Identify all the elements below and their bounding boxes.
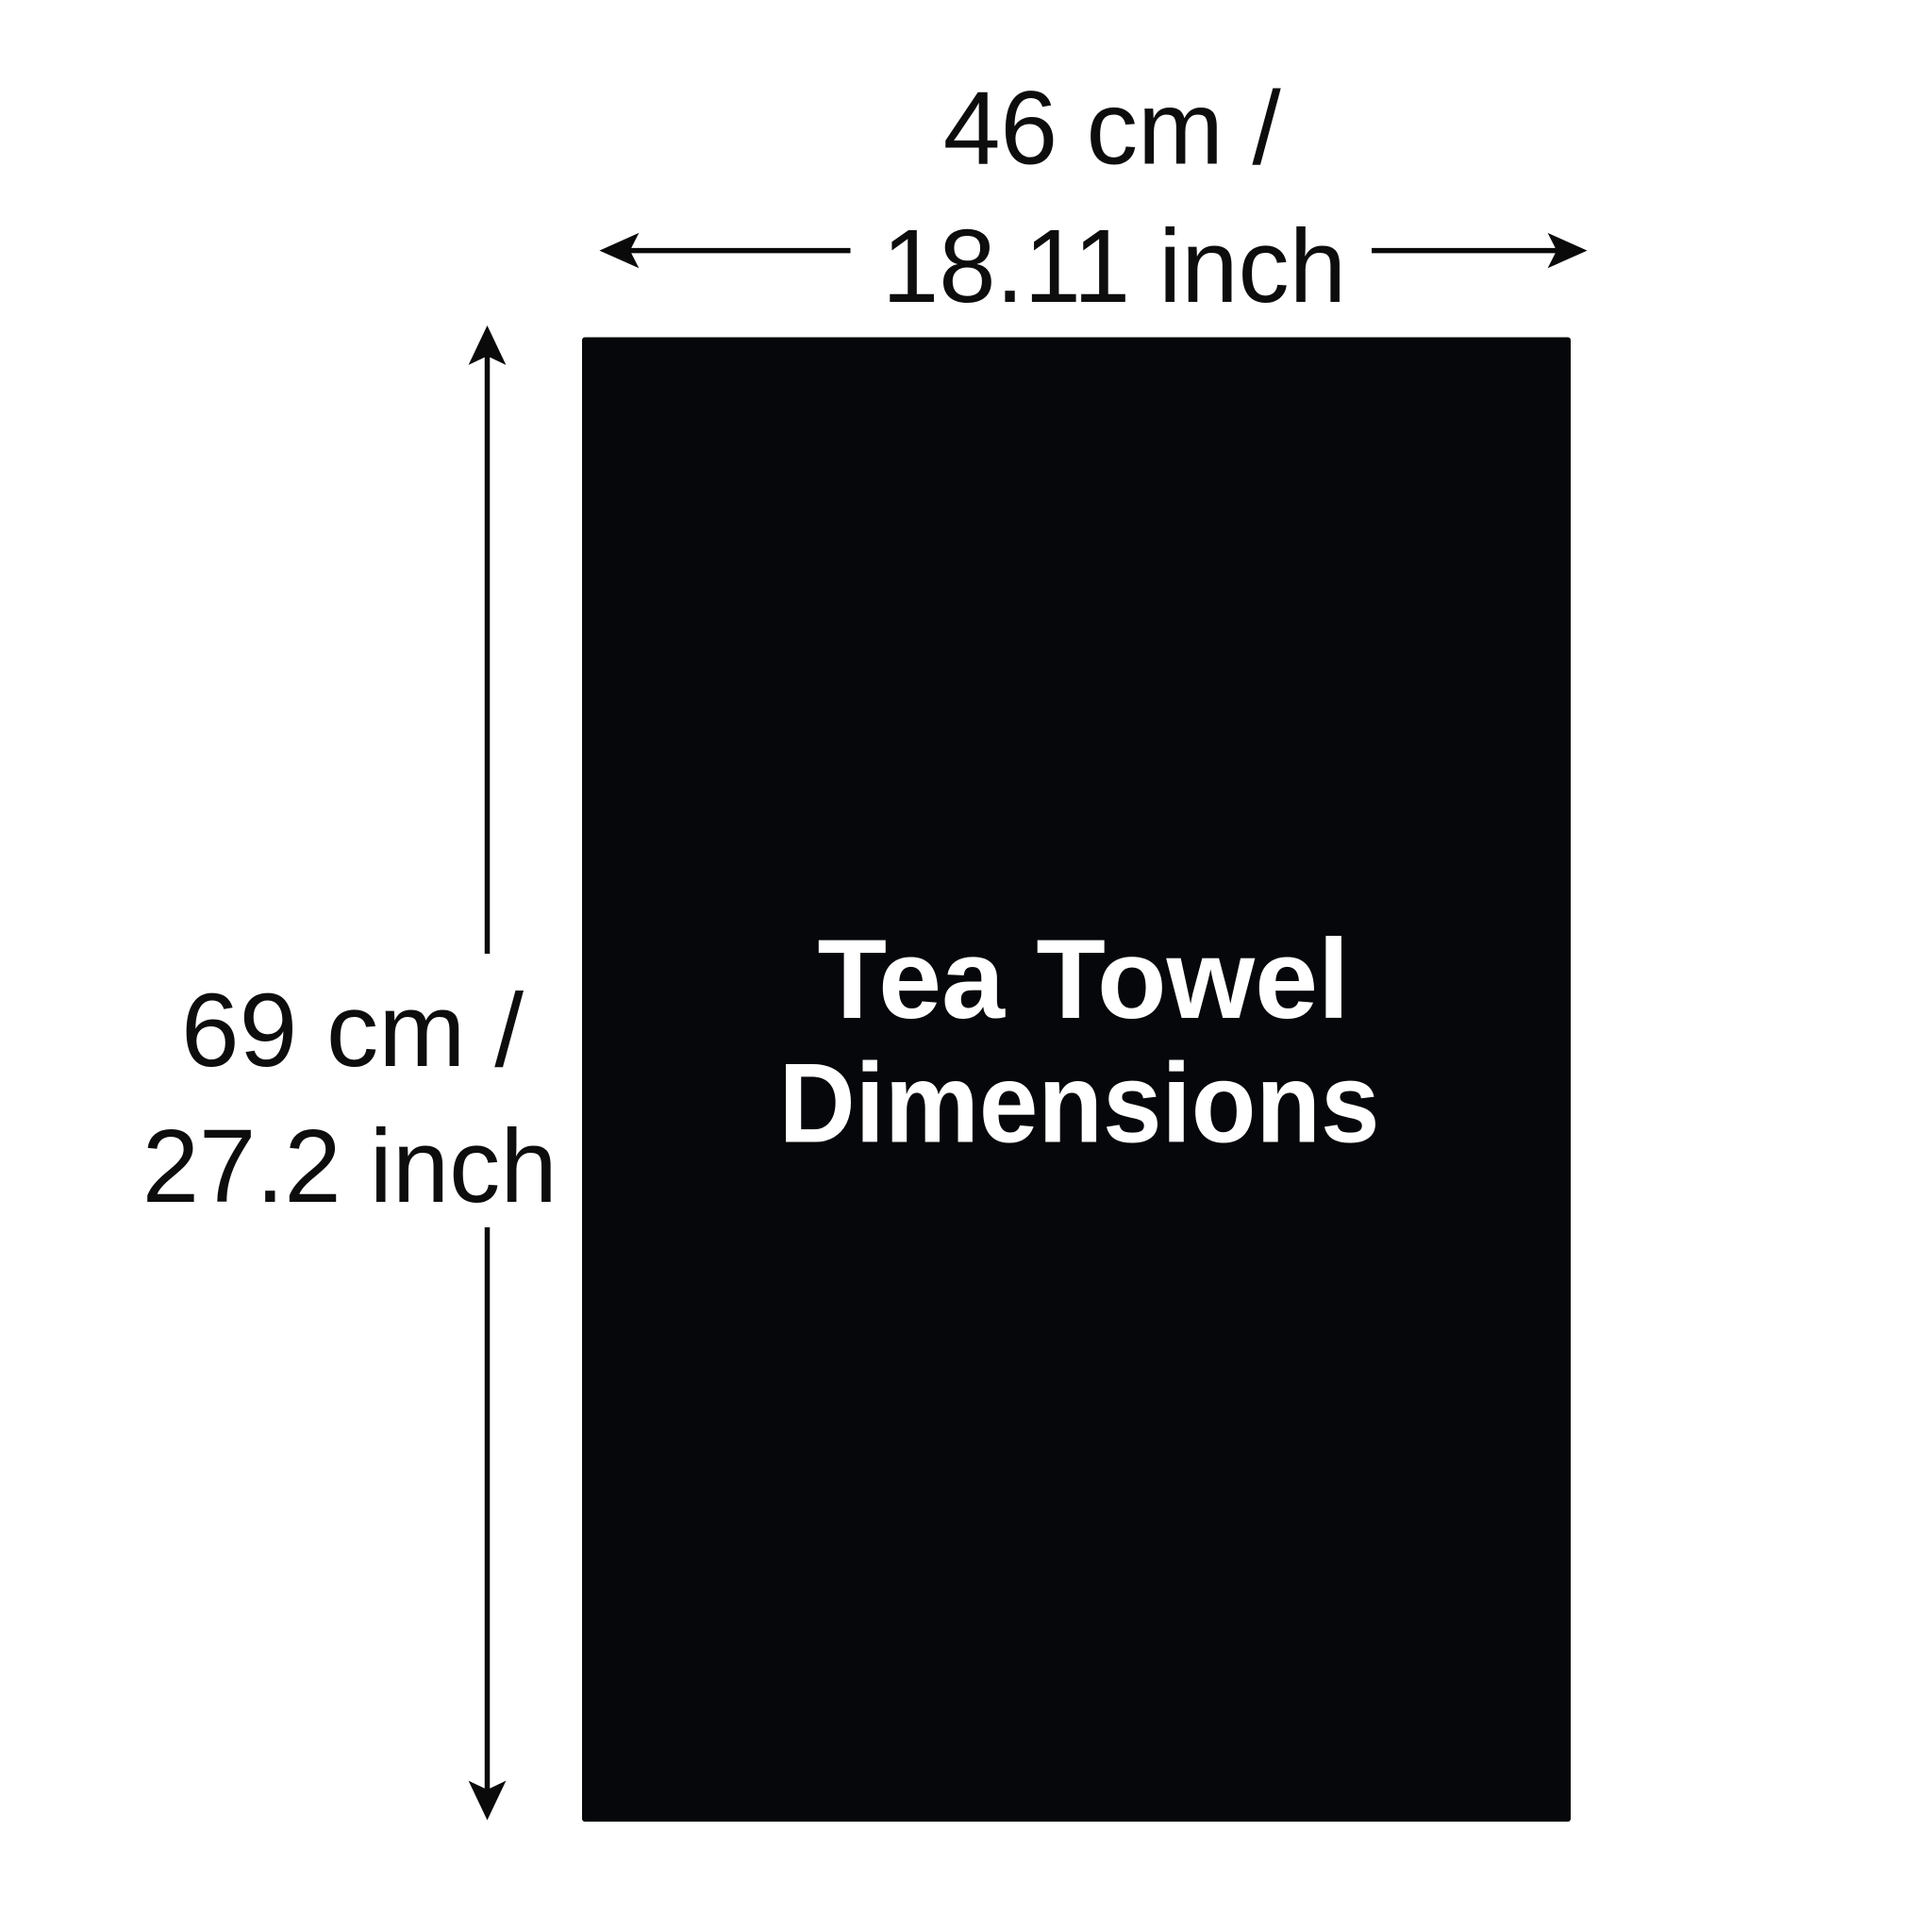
svg-text:Tea Towel: Tea Towel (818, 916, 1350, 1042)
svg-text:Dimensions: Dimensions (779, 1041, 1380, 1167)
svg-text:27.2 inch: 27.2 inch (142, 1108, 558, 1224)
svg-text:69 cm /: 69 cm / (181, 973, 524, 1089)
svg-text:18.11 inch: 18.11 inch (882, 208, 1346, 325)
svg-text:46 cm /: 46 cm / (943, 71, 1281, 187)
